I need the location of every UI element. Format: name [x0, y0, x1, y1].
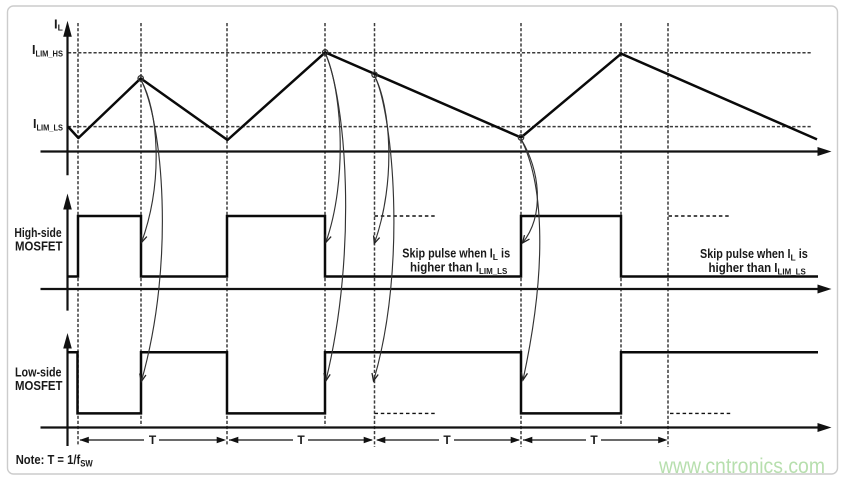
svg-text:T: T — [149, 433, 157, 447]
svg-text:MOSFET: MOSFET — [15, 379, 63, 393]
svg-text:T: T — [443, 433, 451, 447]
svg-text:T: T — [590, 433, 598, 447]
svg-text:Low-side: Low-side — [15, 366, 62, 380]
svg-text:T: T — [297, 433, 305, 447]
svg-text:High-side: High-side — [14, 226, 61, 240]
svg-text:MOSFET: MOSFET — [15, 240, 63, 254]
svg-text:www.cntronics.com: www.cntronics.com — [658, 455, 825, 478]
